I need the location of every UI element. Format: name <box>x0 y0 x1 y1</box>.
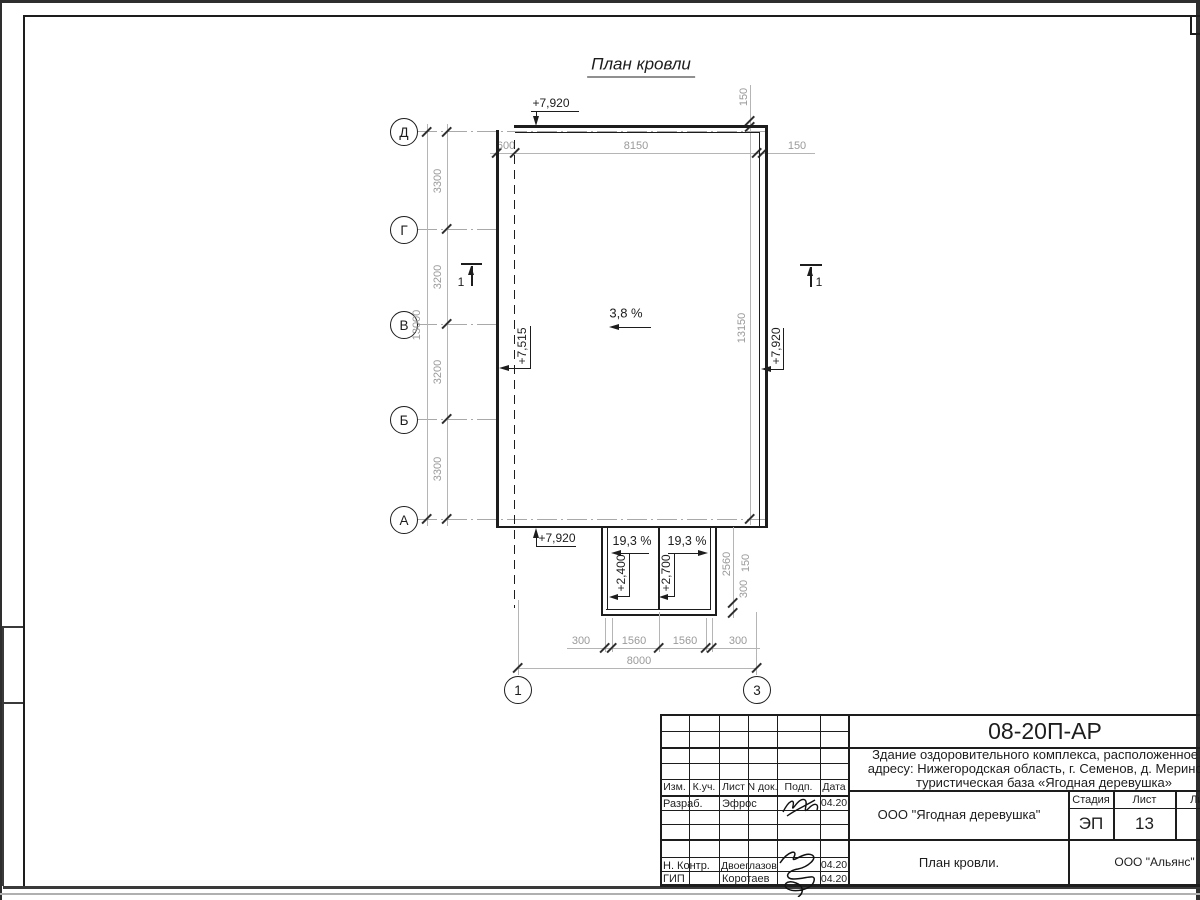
margin-cell-line-2 <box>2 702 23 704</box>
section-mark-right-number: 1 <box>816 275 823 289</box>
canopy-elev-right-riser <box>674 554 675 597</box>
elevation-bottom-underline <box>536 546 576 547</box>
tb-company: ООО "Альянс" <box>1069 840 1200 884</box>
roof-hidden-edge-dashed <box>514 140 515 608</box>
tb-role-razrab: Разраб. <box>663 798 703 810</box>
arrow-up-icon <box>468 266 474 275</box>
dim-line-left-chain <box>447 124 448 526</box>
dim-value-13150: 13150 <box>736 313 748 344</box>
axis-bubble-b: Б <box>390 406 418 434</box>
tb-header-kuch: К.уч. <box>689 779 719 795</box>
margin-column-line <box>2 626 4 886</box>
frame-corner-box-v <box>1190 15 1192 35</box>
dim-value-3300-2: 3300 <box>432 457 444 481</box>
axis-label-3: 3 <box>753 683 761 698</box>
arrow-left-icon <box>499 365 509 371</box>
tb-date-3: 04.20 <box>820 872 848 886</box>
dim-value-2560: 2560 <box>721 552 733 576</box>
dim-value-300-b2: 300 <box>729 635 747 647</box>
page-title: План кровли <box>587 55 695 78</box>
tb-sheet-label: Лист <box>1114 791 1175 808</box>
canopy-inner-right <box>710 527 711 609</box>
elevation-left: +7,515 <box>515 327 529 364</box>
canopy-edge-left <box>601 527 603 616</box>
canopy-slope-left: 19,3 % <box>613 534 652 548</box>
tb-header-izm: Изм. <box>660 779 689 795</box>
dim-line-canopy-right <box>733 527 734 618</box>
tb-date-1: 04.20 <box>820 796 848 810</box>
titleblock-line <box>660 824 848 825</box>
frame-top <box>23 15 1200 17</box>
canopy-elev-left-riser <box>629 554 630 597</box>
tb-name-korotaev: Коротаев <box>722 873 770 885</box>
tb-sheet-value: 13 <box>1114 808 1175 839</box>
tb-header-data: Дата <box>820 779 848 795</box>
axis-label-b: Б <box>400 413 409 428</box>
scan-shadow-bottom <box>0 893 1200 895</box>
axis-label-v: В <box>399 318 408 333</box>
axis-bubble-1: 1 <box>504 676 532 704</box>
signature-dvoeglazov-korotaev <box>774 845 824 897</box>
dim-value-8150: 8150 <box>624 140 648 152</box>
section-mark-right-bar <box>800 264 822 266</box>
roof-inner-line-right <box>759 132 760 526</box>
tb-role-gip: ГИП <box>663 873 685 885</box>
tb-organization: ООО "Ягодная деревушка" <box>850 791 1068 838</box>
canopy-elevation-right: +2,700 <box>659 554 673 591</box>
dim-value-150-right: 150 <box>738 88 750 106</box>
axis-line-v <box>417 324 497 325</box>
elevation-left-riser <box>530 326 531 369</box>
dim-value-300-b1: 300 <box>572 635 590 647</box>
arrow-left-icon <box>761 366 771 372</box>
canopy-elevation-left: +2,400 <box>614 554 628 591</box>
dim-value-150-top-right: 150 <box>788 140 806 152</box>
elevation-top-underline <box>531 111 579 112</box>
slope-label-main: 3,8 % <box>609 306 642 321</box>
titleblock-line <box>660 763 848 764</box>
margin-cell-line-1 <box>2 626 23 628</box>
tb-project-line3: туристическая база «Ягодная деревушка» <box>848 776 1200 790</box>
titleblock-line <box>719 715 720 886</box>
dim-value-3200-1: 3200 <box>432 265 444 289</box>
axis-label-d: Д <box>399 125 408 140</box>
tb-header-list: Лист <box>719 779 748 795</box>
axis-line-a <box>417 519 766 520</box>
dim-value-300-canopy: 300 <box>738 580 750 598</box>
frame-left <box>23 15 25 888</box>
scan-edge-top <box>0 0 1200 3</box>
dim-line-bottom-chain <box>567 648 760 649</box>
roof-edge-left <box>496 130 499 527</box>
arrow-right-icon <box>698 550 708 556</box>
titleblock-line <box>660 731 848 732</box>
dim-value-1560-1: 1560 <box>622 635 646 647</box>
tb-stage-value: ЭП <box>1068 808 1114 839</box>
arrow-down-icon <box>533 116 539 126</box>
tb-header-ndok: N док. <box>748 779 777 795</box>
dim-line-right <box>750 85 751 525</box>
tb-project-line2: адресу: Нижегородская область, г. Семено… <box>848 762 1200 776</box>
axis-bubble-a: А <box>390 506 418 534</box>
tb-role-nkontr: Н. Контр. <box>663 860 710 872</box>
dim-value-13000: 13000 <box>411 310 423 341</box>
canopy-slope-right: 19,3 % <box>668 534 707 548</box>
arrow-up-icon <box>807 267 813 276</box>
dim-value-8000: 8000 <box>627 655 651 667</box>
frame-corner-box-h <box>1190 33 1200 35</box>
axis-bubble-3: 3 <box>743 676 771 704</box>
arrow-left-icon <box>659 594 668 600</box>
roof-edge-top <box>514 125 767 128</box>
dim-value-3300-1: 3300 <box>432 169 444 193</box>
canopy-inner-left <box>607 527 608 609</box>
section-mark-left-number: 1 <box>458 275 465 289</box>
tb-stage-label: Стадия <box>1068 791 1114 808</box>
arrow-left-icon <box>609 324 619 330</box>
axis-line-b <box>417 419 497 420</box>
elevation-right-riser <box>783 328 784 370</box>
dim-value-3200-2: 3200 <box>432 360 444 384</box>
elevation-bottom: +7,920 <box>538 531 575 545</box>
axis-label-1: 1 <box>514 683 522 698</box>
dim-line-13000 <box>427 124 428 526</box>
tb-project-description: Здание оздоровительного комплекса, распо… <box>848 748 1200 790</box>
elevation-top: +7,920 <box>532 96 569 110</box>
tb-name-efros: Эфрос <box>722 798 757 810</box>
titleblock-border <box>660 715 662 886</box>
arrow-left-icon <box>609 594 618 600</box>
tb-sheets-label: Листов <box>1176 791 1200 808</box>
dim-value-150-canopy: 150 <box>740 554 752 572</box>
roof-edge-right <box>765 125 768 528</box>
signature-efros <box>779 792 823 820</box>
axis-bubble-g: Г <box>390 216 418 244</box>
elevation-right: +7,920 <box>769 327 783 364</box>
tb-project-line1: Здание оздоровительного комплекса, распо… <box>848 748 1200 762</box>
dim-line-bottom-total <box>518 668 757 669</box>
roof-inner-line-top <box>515 132 760 133</box>
axis-label-a: А <box>399 513 408 528</box>
dim-value-1560-2: 1560 <box>673 635 697 647</box>
section-mark-left-bar <box>461 263 482 265</box>
axis-label-g: Г <box>400 223 407 238</box>
tb-name-dvoeglazov: Двоеглазов <box>721 860 777 872</box>
tb-doc-number: 08-20П-АР <box>850 715 1200 747</box>
drawing-sheet: План кровли Д Г В Б А 13000 3300 3200 32… <box>0 0 1200 900</box>
axis-bubble-d: Д <box>390 118 418 146</box>
dim-value-600: 600 <box>497 140 515 152</box>
canopy-edge-right <box>715 527 717 616</box>
tb-drawing-name: План кровли. <box>850 840 1068 884</box>
axis-line-g <box>417 229 497 230</box>
tb-date-2: 04.20 <box>820 858 848 872</box>
